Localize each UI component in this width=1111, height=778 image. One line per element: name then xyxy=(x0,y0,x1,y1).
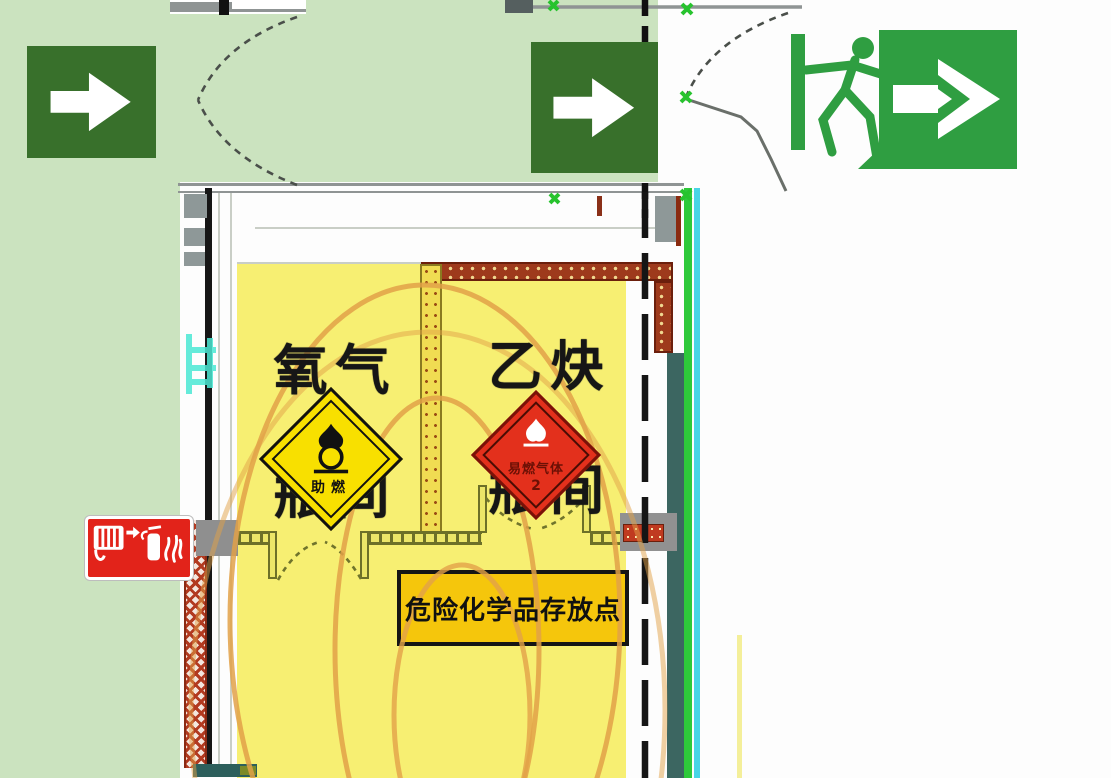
storage-point-label: 危险化学品存放点 xyxy=(405,590,621,627)
fire-extinguisher-hose-icon xyxy=(88,519,184,571)
oxidizer-placard-label: 助燃 xyxy=(311,477,351,497)
oxidizer-placard: 助燃 xyxy=(259,387,403,531)
exit-arrow-right-icon xyxy=(36,56,147,148)
exit-arrow-right-icon xyxy=(540,54,649,161)
flammable-gas-flame-icon xyxy=(514,417,558,457)
floor-plan-canvas: 危险化学品存放点 xyxy=(0,0,1111,778)
exit-arrow-sign-middle xyxy=(531,42,658,173)
running-man-exit-icon xyxy=(806,37,890,158)
flammable-gas-placard-label: 易燃气体 xyxy=(508,458,564,477)
flammable-gas-class-number: 2 xyxy=(531,478,541,494)
flammable-gas-placard: 易燃气体 2 xyxy=(471,390,601,520)
emergency-exit-sign xyxy=(790,25,1020,175)
exit-arrow-sign-left xyxy=(27,46,156,158)
exit-door-bar xyxy=(791,34,805,150)
room-label-acetylene-line1: 乙炔 xyxy=(465,336,635,398)
fire-equipment-sign xyxy=(85,516,193,580)
oxidizer-flame-circle-icon xyxy=(304,422,358,476)
